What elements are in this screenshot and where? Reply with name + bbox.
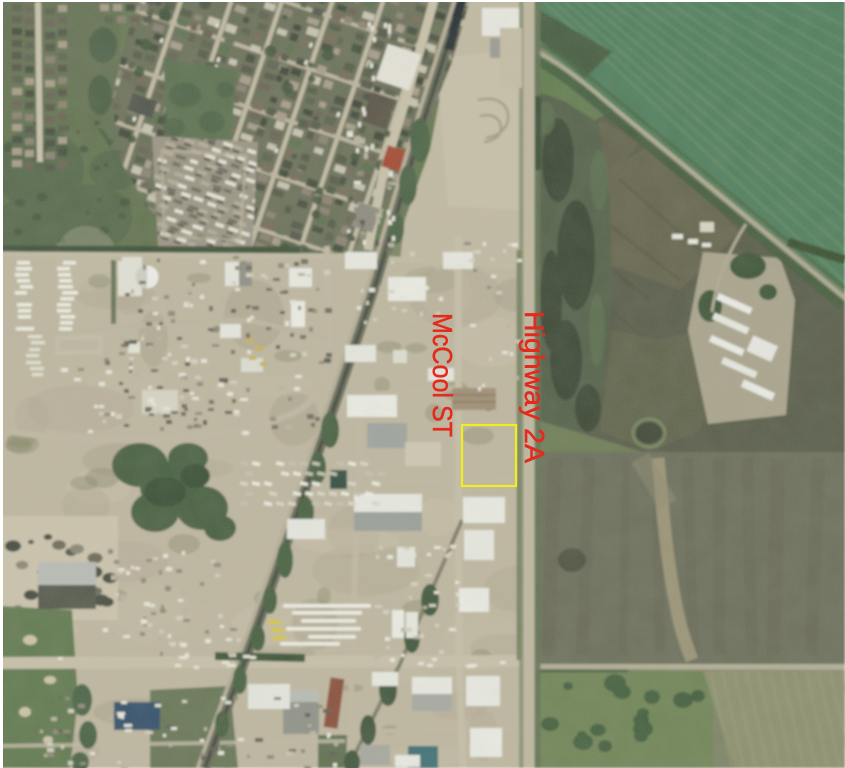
svg-text:McCool ST: McCool ST [427, 313, 458, 437]
svg-text:Highway 2A: Highway 2A [519, 311, 550, 464]
